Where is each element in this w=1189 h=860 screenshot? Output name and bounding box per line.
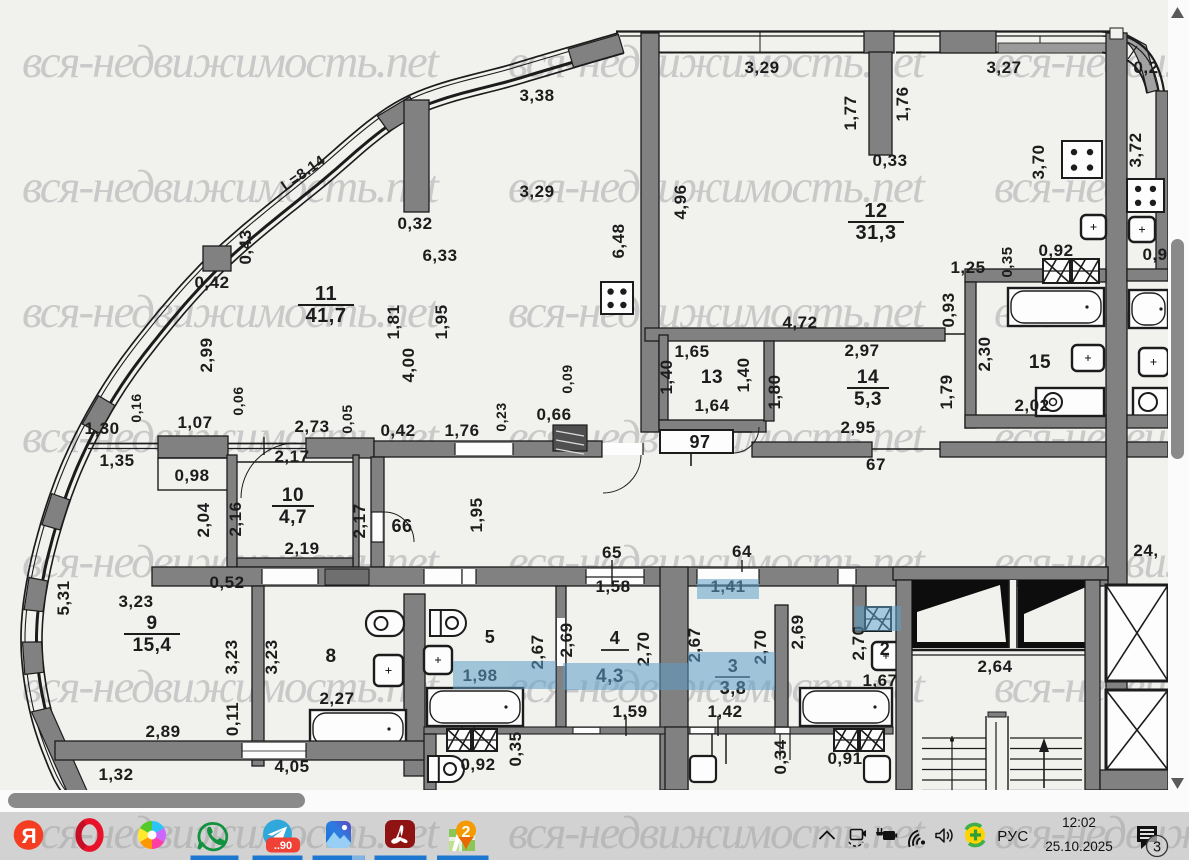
svg-text:2,97: 2,97 [844, 341, 879, 360]
svg-text:11: 11 [315, 283, 337, 305]
svg-text:3,72: 3,72 [1126, 132, 1145, 167]
svg-text:9: 9 [146, 613, 157, 634]
svg-text:0,23: 0,23 [493, 402, 509, 431]
svg-text:12:02: 12:02 [1062, 815, 1096, 830]
svg-text:РУС: РУС [997, 828, 1029, 845]
svg-text:2,70: 2,70 [634, 631, 653, 666]
svg-text:3,29: 3,29 [744, 58, 779, 77]
svg-text:97: 97 [689, 432, 710, 452]
svg-text:0,92: 0,92 [1038, 241, 1073, 260]
svg-text:1,95: 1,95 [467, 497, 486, 532]
svg-text:1,67: 1,67 [862, 671, 897, 690]
svg-text:6,48: 6,48 [609, 223, 628, 258]
svg-text:1,81: 1,81 [384, 304, 403, 339]
svg-text:1,77: 1,77 [841, 95, 860, 130]
svg-text:1,58: 1,58 [595, 577, 630, 596]
svg-text:3,23: 3,23 [222, 639, 241, 674]
svg-text:2,73: 2,73 [294, 417, 329, 436]
svg-text:64: 64 [732, 542, 752, 561]
svg-text:1,64: 1,64 [694, 396, 729, 415]
svg-text:0,93: 0,93 [939, 292, 958, 327]
svg-text:вся-недвижимость.net: вся-недвижимость.net [22, 161, 440, 213]
svg-text:0,16: 0,16 [128, 393, 144, 422]
svg-text:2,69: 2,69 [788, 614, 807, 649]
svg-text:0,43: 0,43 [236, 229, 255, 264]
svg-text:4,96: 4,96 [671, 184, 690, 219]
svg-text:1,40: 1,40 [734, 357, 753, 392]
svg-text:1,59: 1,59 [612, 702, 647, 721]
svg-text:1,76: 1,76 [444, 421, 479, 440]
svg-text:1,79: 1,79 [937, 374, 956, 409]
svg-text:5,3: 5,3 [854, 389, 882, 410]
svg-text:1,07: 1,07 [177, 413, 212, 432]
svg-text:3,70: 3,70 [1029, 144, 1048, 179]
svg-text:4,05: 4,05 [274, 757, 309, 776]
svg-text:2,19: 2,19 [284, 539, 319, 558]
svg-text:1,42: 1,42 [707, 702, 742, 721]
svg-text:13: 13 [701, 367, 723, 388]
svg-text:1,25: 1,25 [950, 258, 985, 277]
svg-text:25.10.2025: 25.10.2025 [1045, 839, 1113, 854]
svg-text:15,4: 15,4 [133, 635, 172, 656]
svg-text:67: 67 [866, 455, 886, 474]
svg-text:0,11: 0,11 [223, 702, 242, 736]
svg-text:14: 14 [857, 367, 879, 388]
svg-text:3,23: 3,23 [118, 592, 153, 611]
svg-text:2,17: 2,17 [274, 447, 309, 466]
svg-text:0,33: 0,33 [872, 151, 907, 170]
svg-text:1,30: 1,30 [84, 419, 119, 438]
svg-text:12: 12 [864, 200, 887, 222]
svg-text:0,98: 0,98 [174, 466, 209, 485]
svg-text:2,16: 2,16 [226, 501, 245, 536]
svg-text:1,32: 1,32 [98, 765, 133, 784]
svg-text:6,33: 6,33 [422, 246, 457, 265]
svg-text:2,04: 2,04 [194, 502, 213, 537]
svg-text:2,95: 2,95 [840, 418, 875, 437]
svg-text:8: 8 [325, 646, 336, 667]
svg-text:2: 2 [462, 824, 471, 841]
svg-text:2,30: 2,30 [975, 336, 994, 371]
svg-text:4,7: 4,7 [279, 507, 307, 528]
svg-text:3,38: 3,38 [519, 86, 554, 105]
svg-text:4,72: 4,72 [782, 313, 817, 332]
svg-text:1,40: 1,40 [657, 359, 676, 394]
svg-text:0,35: 0,35 [999, 246, 1016, 277]
svg-text:65: 65 [602, 543, 622, 562]
svg-text:66: 66 [391, 516, 412, 536]
svg-text:3,27: 3,27 [986, 58, 1021, 77]
svg-text:0,34: 0,34 [771, 739, 790, 774]
svg-text:2,64: 2,64 [977, 657, 1012, 676]
svg-text:Я: Я [21, 825, 36, 848]
svg-text:1,80: 1,80 [765, 374, 784, 409]
svg-text:3,23: 3,23 [262, 639, 281, 674]
svg-text:2,02: 2,02 [1014, 396, 1049, 415]
svg-text:4,00: 4,00 [399, 347, 418, 382]
svg-text:2,89: 2,89 [145, 722, 180, 741]
svg-text:15: 15 [1029, 352, 1051, 373]
svg-text:1,95: 1,95 [432, 304, 451, 339]
svg-text:вся-недвижимость.net: вся-недвижимость.net [22, 807, 440, 859]
svg-text:..90: ..90 [274, 840, 292, 852]
svg-text:3,29: 3,29 [519, 182, 554, 201]
svg-text:1,35: 1,35 [99, 451, 134, 470]
svg-text:10: 10 [282, 485, 304, 506]
svg-text:0,05: 0,05 [339, 404, 355, 433]
svg-text:31,3: 31,3 [856, 222, 897, 244]
svg-text:0,92: 0,92 [460, 755, 495, 774]
svg-text:4: 4 [610, 628, 621, 648]
svg-text:0,42: 0,42 [194, 273, 229, 292]
svg-text:0,91: 0,91 [827, 749, 862, 768]
svg-text:2,27: 2,27 [319, 689, 354, 708]
svg-text:вся-недвижимость.net: вся-недвижимость.net [22, 36, 440, 88]
svg-text:0,32: 0,32 [397, 214, 432, 233]
svg-text:5,31: 5,31 [54, 580, 73, 615]
svg-text:24,: 24, [1133, 541, 1158, 560]
svg-text:0,52: 0,52 [209, 573, 244, 592]
svg-text:0,42: 0,42 [380, 421, 415, 440]
svg-text:2: 2 [880, 639, 891, 659]
svg-text:2,69: 2,69 [557, 622, 576, 657]
svg-text:0,2: 0,2 [1133, 58, 1158, 77]
svg-text:0,09: 0,09 [559, 364, 575, 393]
svg-text:2,17: 2,17 [350, 503, 369, 538]
svg-text:0,06: 0,06 [230, 386, 246, 415]
svg-text:1,76: 1,76 [893, 86, 912, 121]
svg-text:0,35: 0,35 [506, 731, 525, 766]
svg-text:3: 3 [1153, 840, 1161, 856]
svg-text:вся-недвижимость.net: вся-недвижимость.net [22, 286, 440, 338]
svg-text:41,7: 41,7 [306, 305, 347, 327]
svg-text:вся-недвижимость.net: вся-недвижимость.net [508, 161, 926, 213]
svg-text:5: 5 [485, 627, 496, 647]
svg-text:0,66: 0,66 [536, 405, 571, 424]
svg-text:2,99: 2,99 [197, 337, 216, 372]
svg-text:1,65: 1,65 [674, 342, 709, 361]
